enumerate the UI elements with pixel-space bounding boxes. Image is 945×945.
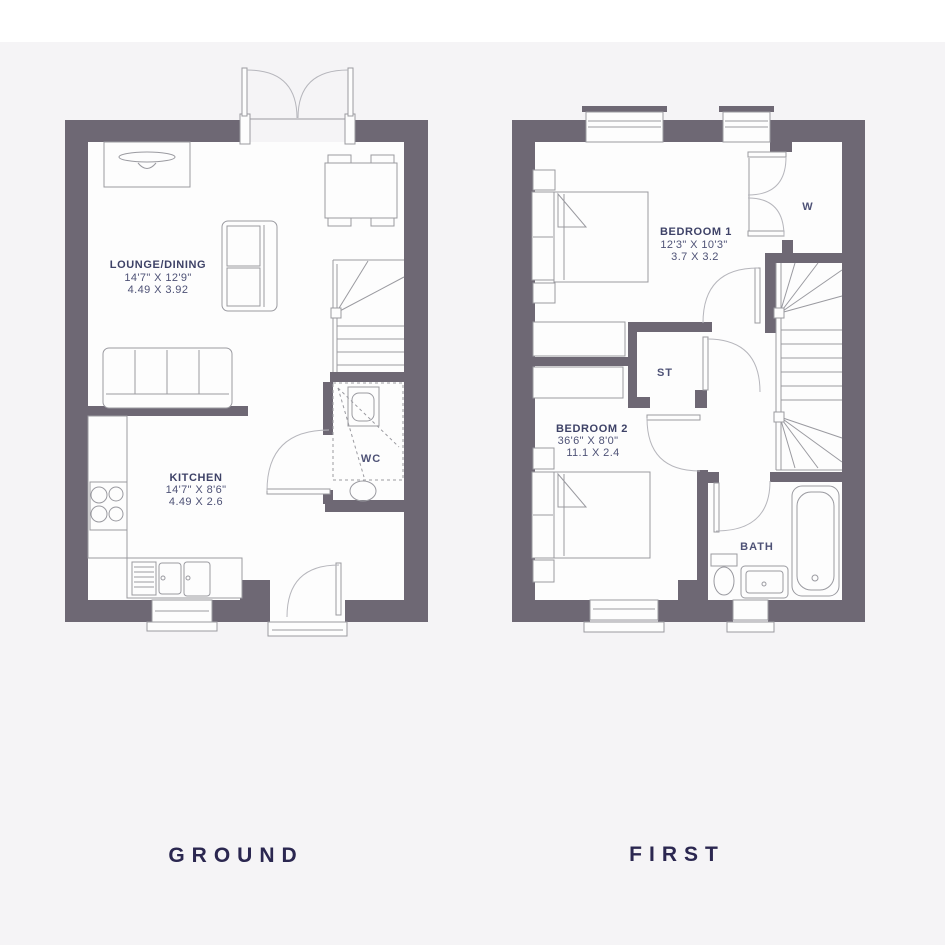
tv-unit-icon [104,142,190,187]
wardrobe-label: W [802,201,813,213]
bathtub-icon [792,486,839,596]
kitchen-metric: 4.49 X 2.6 [169,496,223,508]
bedroom1-imperial: 12'3" X 10'3" [660,239,727,251]
bath-label: BATH [740,541,774,553]
sofa-icon [103,348,232,408]
lounge-imperial: 14'7" X 12'9" [124,272,191,284]
top-white-band [0,0,945,42]
dining-table-icon [325,155,397,226]
kitchen-counter-icon [88,416,127,558]
floorplan-page: LOUNGE/DINING 14'7" X 12'9" 4.49 X 3.92 … [0,0,945,945]
kitchen-window-icon [147,600,217,631]
bedroom1-label: BEDROOM 1 [660,226,732,238]
first-floor-caption: FIRST [629,843,725,867]
sink-unit-icon [127,558,242,598]
bedroom1-metric: 3.7 X 3.2 [671,251,719,263]
wc-label: WC [361,453,381,465]
lounge-label: LOUNGE/DINING [110,259,206,271]
ground-floor-plan [60,60,440,660]
french-doors-icon [240,68,355,144]
lounge-metric: 4.49 X 3.92 [128,284,189,296]
bedroom2-label: BEDROOM 2 [556,423,628,435]
bedroom2-imperial: 36'6" X 8'0" [558,435,619,447]
kitchen-label: KITCHEN [169,472,222,484]
ground-floor-caption: GROUND [168,844,303,868]
armchair-icon [222,221,277,311]
basin-icon [741,566,788,598]
kitchen-imperial: 14'7" X 8'6" [166,484,227,496]
store-label: ST [657,367,673,379]
first-floor-plan [505,100,875,640]
bedroom2-metric: 11.1 X 2.4 [566,447,619,459]
